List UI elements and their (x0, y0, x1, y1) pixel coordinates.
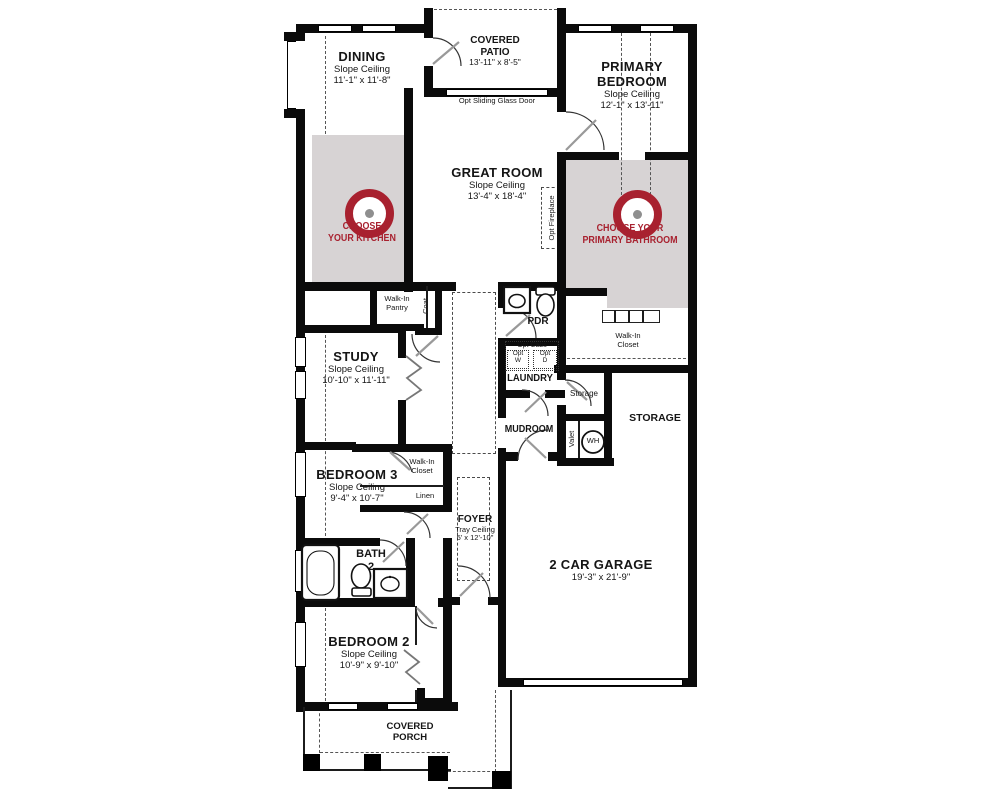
room-label-storage-hall: Storage (560, 389, 608, 398)
room-dims: 10'-10" x 11'-11" (300, 376, 412, 387)
room-label-garage: 2 CAR GARAGE 19'-3" x 21'-9" (535, 558, 667, 584)
target-center-dot (633, 210, 642, 219)
room-title: 2 (346, 561, 396, 574)
room-label-bedroom2: BEDROOM 2 Slope Ceiling 10'-9" x 9'-10" (308, 635, 430, 672)
room-title: DINING (302, 50, 422, 65)
doors-and-fixtures-overlay (0, 0, 1000, 800)
coat-closet-label: Coat (419, 286, 431, 326)
room-dims: 5' x 12'-10" (448, 534, 502, 543)
cta-line: CHOOSE YOUR (567, 223, 693, 235)
pdr-toilet-icon (536, 287, 555, 316)
opt-dryer-label: Opt D (533, 351, 557, 365)
room-label-covered-porch: COVERED PORCH (376, 722, 444, 744)
room-title: COVERED (430, 35, 560, 47)
opt-washer-label: Opt W (507, 351, 529, 365)
pdr-sink-icon (504, 287, 530, 313)
room-dims: 13'-11" x 8'-5" (430, 58, 560, 68)
target-center-dot (365, 209, 374, 218)
opt-cabs-label: Opt Cabs (505, 342, 559, 350)
bathtub-icon (302, 545, 339, 600)
room-title: Closet (397, 467, 447, 476)
room-title: BEDROOM (567, 75, 697, 90)
room-label-foyer: FOYER Tray Ceiling 5' x 12'-10" (448, 514, 502, 543)
room-label-mudroom: MUDROOM (501, 424, 557, 436)
room-title: PORCH (376, 733, 444, 744)
room-dims: 12'-1" x 13'-11" (567, 101, 697, 112)
room-label-study: STUDY Slope Ceiling 10'-10" x 11'-11" (300, 350, 412, 387)
choose-kitchen-cta[interactable]: CHOOSE YOUR KITCHEN (311, 221, 413, 245)
room-label-covered-patio: COVERED PATIO 13'-11" x 8'-5" (430, 35, 560, 68)
room-dims: 11'-1" x 11'-8" (302, 76, 422, 87)
room-label-walk-in-pantry: Walk-In Pantry (371, 295, 423, 312)
opt-dryer-line: D (533, 358, 557, 365)
room-label-pdr: PDR (516, 316, 560, 328)
floor-plan: DINING Slope Ceiling 11'-1" x 11'-8" COV… (0, 0, 1000, 800)
cta-line: CHOOSE (311, 221, 413, 233)
room-title: STUDY (300, 350, 412, 365)
room-label-linen: Linen (400, 492, 450, 501)
room-label-walk-in-closet-bedroom3: Walk-In Closet (397, 458, 447, 475)
room-title: GREAT ROOM (425, 166, 569, 181)
room-title: Pantry (371, 304, 423, 313)
room-dims: 9'-4" x 10'-7" (300, 494, 414, 505)
room-title: BATH (346, 548, 396, 561)
water-heater-label: WH (582, 437, 604, 446)
room-title: BEDROOM 2 (308, 635, 430, 650)
room-label-walk-in-closet-primary: Walk-In Closet (600, 332, 656, 349)
room-label-laundry: LAUNDRY (501, 372, 559, 384)
bath2-sink-icon (374, 569, 407, 598)
opt-sliding-glass-door-label: Opt Sliding Glass Door (437, 97, 557, 106)
room-dims: 19'-3" x 21'-9" (535, 573, 667, 584)
room-title: FOYER (448, 514, 502, 526)
room-dims: 10'-9" x 9'-10" (308, 661, 430, 672)
room-label-dining: DINING Slope Ceiling 11'-1" x 11'-8" (302, 50, 422, 87)
cta-line: YOUR KITCHEN (311, 233, 413, 245)
room-label-primary-bedroom: PRIMARY BEDROOM Slope Ceiling 12'-1" x 1… (567, 60, 697, 112)
opt-washer-line: W (507, 358, 529, 365)
room-label-storage-garage: STORAGE (619, 412, 691, 424)
room-title: Closet (600, 341, 656, 350)
room-title: PRIMARY (567, 60, 697, 75)
room-label-bath2: BATH 2 (346, 548, 396, 573)
room-title: 2 CAR GARAGE (535, 558, 667, 573)
valet-label: Valet (565, 419, 577, 459)
cta-line: PRIMARY BATHROOM (567, 235, 693, 247)
choose-primary-bathroom-cta[interactable]: CHOOSE YOUR PRIMARY BATHROOM (567, 223, 693, 247)
opt-fireplace-label: Opt Fireplace (545, 190, 557, 246)
